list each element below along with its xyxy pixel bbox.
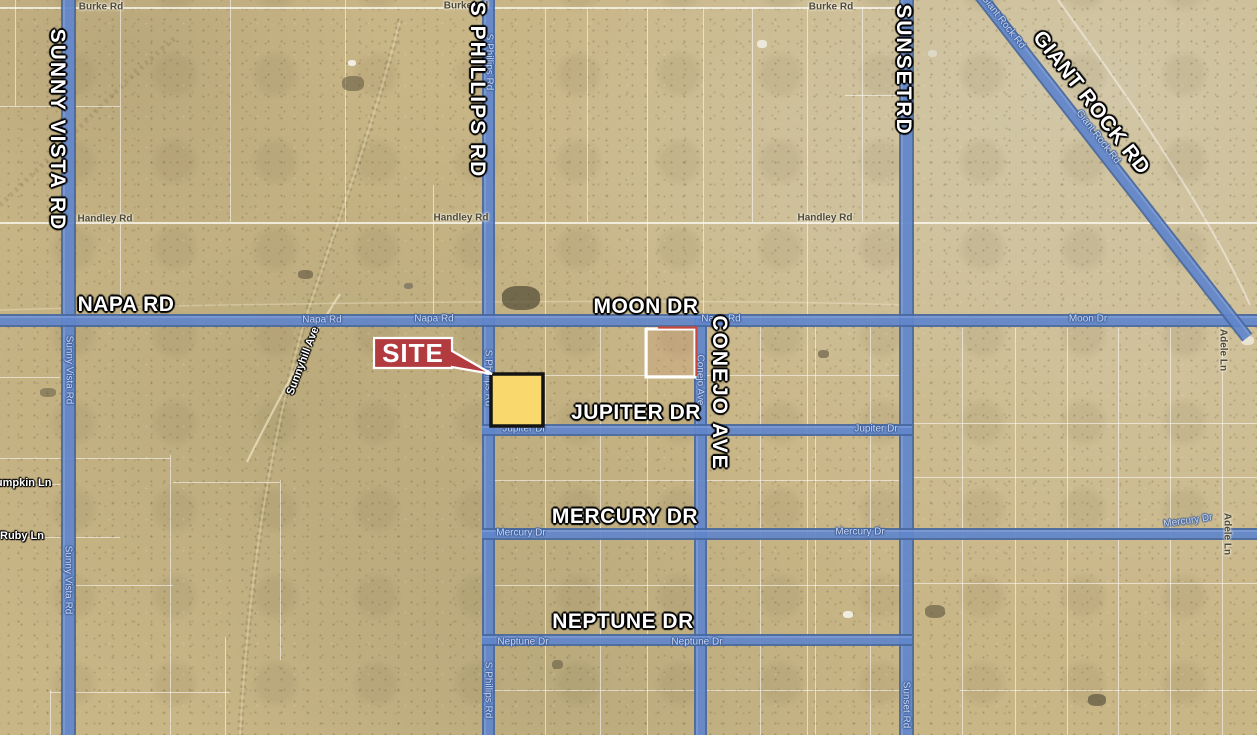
annotation-overlay: SITE — [0, 0, 1257, 735]
site-callout: SITE — [374, 338, 492, 374]
satellite-map[interactable]: Napa RdNapa RdNapa RdMoon DrJupiter DrJu… — [0, 0, 1257, 735]
outlined-parcel — [646, 328, 697, 378]
site-parcel — [491, 374, 543, 426]
site-callout-text: SITE — [382, 338, 444, 368]
